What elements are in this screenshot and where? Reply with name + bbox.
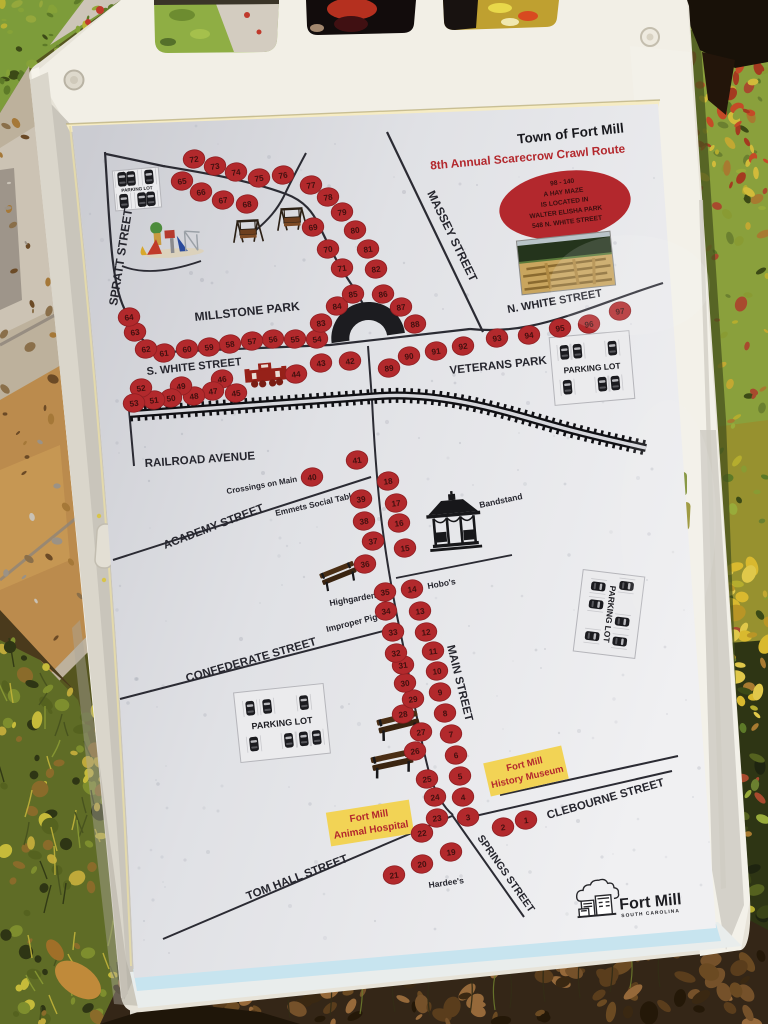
svg-text:12: 12 — [421, 628, 432, 638]
svg-text:50: 50 — [166, 394, 177, 404]
svg-text:67: 67 — [218, 196, 229, 206]
svg-text:53: 53 — [129, 399, 140, 409]
svg-text:16: 16 — [394, 519, 405, 529]
svg-text:86: 86 — [378, 290, 389, 300]
svg-text:35: 35 — [380, 588, 391, 598]
svg-text:40: 40 — [307, 473, 318, 483]
svg-text:71: 71 — [337, 264, 348, 274]
svg-text:21: 21 — [389, 871, 400, 881]
svg-text:25: 25 — [422, 775, 433, 785]
svg-text:33: 33 — [388, 628, 399, 638]
svg-text:18: 18 — [383, 477, 394, 487]
svg-text:87: 87 — [396, 303, 407, 313]
svg-text:94: 94 — [524, 331, 535, 341]
svg-text:68: 68 — [242, 200, 253, 210]
svg-text:74: 74 — [231, 168, 242, 178]
svg-text:13: 13 — [415, 607, 426, 617]
svg-text:27: 27 — [416, 728, 427, 738]
svg-text:51: 51 — [149, 396, 160, 406]
svg-text:69: 69 — [308, 223, 319, 233]
svg-text:78: 78 — [323, 193, 334, 203]
svg-text:48: 48 — [189, 392, 200, 402]
svg-text:24: 24 — [430, 793, 441, 803]
svg-text:10: 10 — [432, 667, 443, 677]
svg-text:54: 54 — [312, 335, 323, 345]
svg-text:44: 44 — [291, 370, 302, 380]
svg-text:29: 29 — [408, 695, 419, 705]
svg-text:31: 31 — [398, 661, 409, 671]
svg-text:91: 91 — [431, 347, 442, 357]
svg-text:37: 37 — [368, 537, 379, 547]
svg-text:95: 95 — [555, 324, 566, 334]
svg-text:19: 19 — [446, 848, 457, 858]
svg-text:32: 32 — [391, 649, 402, 659]
svg-text:89: 89 — [384, 364, 395, 374]
svg-text:59: 59 — [204, 343, 215, 353]
svg-text:26: 26 — [410, 747, 421, 757]
svg-text:61: 61 — [159, 349, 170, 359]
svg-text:39: 39 — [356, 495, 367, 505]
svg-text:57: 57 — [247, 337, 258, 347]
svg-text:56: 56 — [268, 335, 279, 345]
svg-text:36: 36 — [360, 560, 371, 570]
svg-text:22: 22 — [417, 829, 428, 839]
svg-text:30: 30 — [400, 679, 411, 689]
svg-text:55: 55 — [290, 335, 301, 345]
svg-text:65: 65 — [177, 177, 188, 187]
svg-text:41: 41 — [352, 456, 363, 466]
svg-text:38: 38 — [359, 517, 370, 527]
svg-text:23: 23 — [432, 814, 443, 824]
svg-text:72: 72 — [189, 155, 200, 165]
svg-text:70: 70 — [323, 245, 334, 255]
svg-text:58: 58 — [225, 340, 236, 350]
svg-text:80: 80 — [350, 226, 361, 236]
svg-text:47: 47 — [208, 387, 219, 397]
svg-text:76: 76 — [278, 171, 289, 181]
svg-text:17: 17 — [391, 499, 402, 509]
svg-text:42: 42 — [345, 357, 356, 367]
svg-text:60: 60 — [182, 345, 193, 355]
svg-text:20: 20 — [417, 860, 428, 870]
svg-text:34: 34 — [381, 607, 392, 617]
svg-text:81: 81 — [363, 245, 374, 255]
svg-text:62: 62 — [141, 345, 152, 355]
svg-text:64: 64 — [124, 313, 135, 323]
svg-text:82: 82 — [371, 265, 382, 275]
svg-text:92: 92 — [458, 342, 469, 352]
svg-text:63: 63 — [130, 328, 141, 338]
svg-text:90: 90 — [404, 352, 415, 362]
svg-text:45: 45 — [231, 389, 242, 399]
svg-text:84: 84 — [332, 302, 343, 312]
svg-text:52: 52 — [136, 384, 147, 394]
svg-text:73: 73 — [210, 162, 221, 172]
svg-text:85: 85 — [348, 290, 359, 300]
svg-text:93: 93 — [492, 334, 503, 344]
svg-text:66: 66 — [196, 188, 207, 198]
svg-text:88: 88 — [410, 320, 421, 330]
svg-text:11: 11 — [428, 647, 438, 657]
svg-text:83: 83 — [316, 319, 327, 329]
svg-text:77: 77 — [306, 181, 317, 191]
svg-text:14: 14 — [407, 585, 418, 595]
svg-text:43: 43 — [316, 359, 327, 369]
svg-text:15: 15 — [400, 544, 411, 554]
svg-text:28: 28 — [398, 710, 409, 720]
svg-text:75: 75 — [254, 174, 265, 184]
svg-text:79: 79 — [337, 208, 348, 218]
